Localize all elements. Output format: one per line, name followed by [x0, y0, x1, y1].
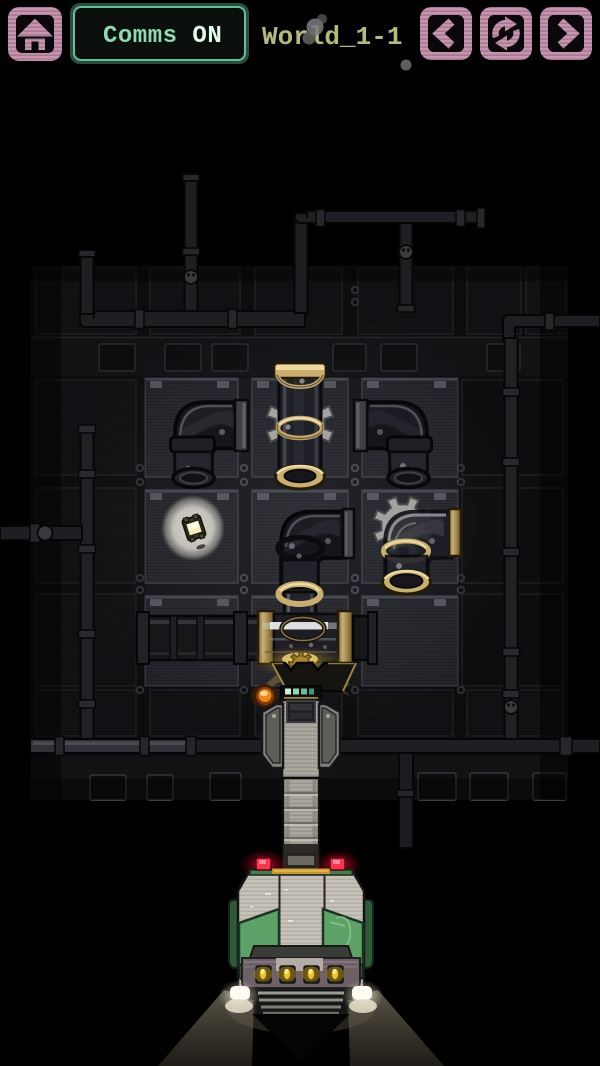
svg-text:World_1-1: World_1-1 [262, 22, 402, 52]
svg-text:Comms ON: Comms ON [103, 23, 222, 50]
